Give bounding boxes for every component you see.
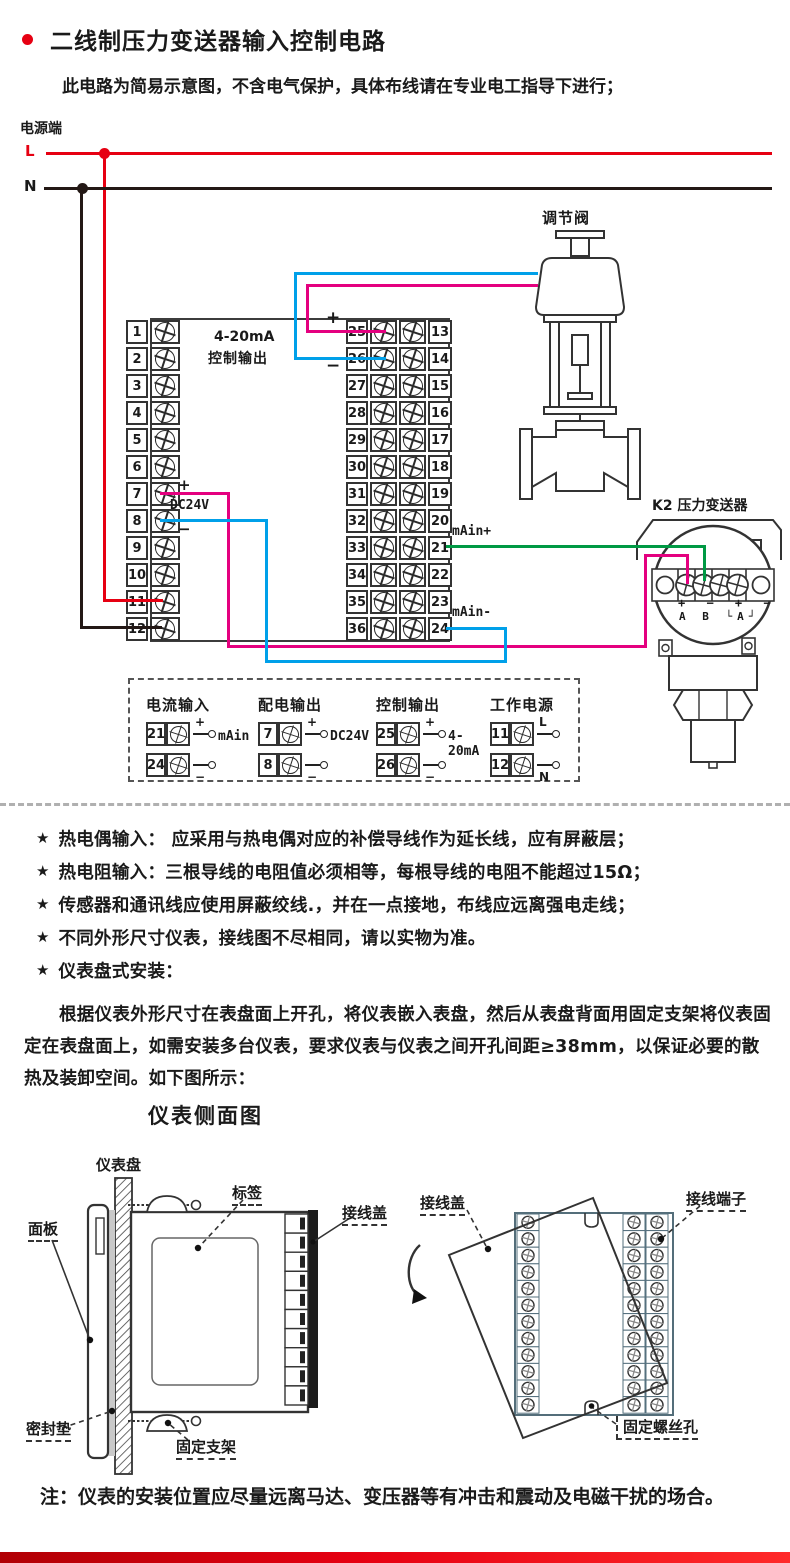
wire-stub: [537, 764, 552, 766]
wire-stub: [423, 733, 438, 735]
screw-icon: [400, 427, 425, 452]
star-icon: ★: [36, 862, 49, 880]
terminal-row: 32 20: [346, 509, 452, 533]
terminal-number: 3: [126, 374, 148, 398]
document-page: 二线制压力变送器输入控制电路 此电路为简易示意图，不含电气保护，具体布线请在专业…: [0, 0, 790, 1563]
terminal-number: 5: [126, 428, 148, 452]
rear-view-group: [409, 1198, 700, 1438]
terminal-screw-cell: [370, 536, 397, 560]
terminal-screw-cell: [399, 536, 426, 560]
page-subtitle: 此电路为简易示意图，不含电气保护，具体布线请在专业电工指导下进行；: [62, 72, 623, 97]
screw-icon: [152, 589, 177, 614]
terminal-row: 1: [126, 320, 180, 344]
terminal-number: 11: [126, 590, 148, 614]
screw-icon: [400, 589, 425, 614]
terminal-cover-label: 接线盖: [342, 1202, 387, 1226]
wire-segment-main-minus: [265, 660, 507, 663]
terminal-number-inner: 33: [346, 536, 368, 560]
legend-group-control-output: 控制输出 25+ 26− 4-20mA: [376, 694, 446, 784]
terminal-circle-icon: [208, 761, 216, 769]
terminal-screw-cell: [399, 455, 426, 479]
terminal-number-inner: 28: [346, 401, 368, 425]
page-title: 二线制压力变送器输入控制电路: [50, 22, 386, 56]
wire-segment-live: [46, 152, 772, 155]
screw-icon: [152, 400, 177, 425]
main-minus-label: mAin-: [452, 605, 491, 620]
screw-icon: [371, 508, 396, 533]
terminal-number: 9: [126, 536, 148, 560]
screw-icon: [152, 562, 177, 587]
wire-segment-main-minus: [446, 627, 507, 630]
note-text: 热电偶输入： 应采用与热电偶对应的补偿导线作为延长线，应有屏蔽层；: [58, 826, 634, 851]
terminal-cover2-label: 接线盖: [420, 1192, 465, 1216]
terminal-number-inner: 36: [346, 617, 368, 641]
valve-label: 调节阀: [542, 207, 590, 228]
terminal-row: 5: [126, 428, 180, 452]
terminal-number-inner: 27: [346, 374, 368, 398]
terminal-number: 7: [258, 722, 278, 746]
polarity-tag: +: [195, 715, 205, 729]
legend-group-power-output: 配电输出 7+ 8− DC24V: [258, 694, 328, 784]
screw-icon: [397, 723, 418, 744]
wire-stub: [537, 733, 552, 735]
note-item: ★ 传感器和通讯线应使用屏蔽绞线.，并在一点接地，布线应远离强电走线；: [36, 892, 772, 925]
terminal-screw-cell: [399, 374, 426, 398]
neutral-line-label: N: [24, 177, 37, 195]
terminal-number: 8: [126, 509, 148, 533]
terminal-number-inner: 29: [346, 428, 368, 452]
terminal-row: 27 15: [346, 374, 452, 398]
terminal-number-inner: 30: [346, 455, 368, 479]
terminal26-minus-sign: −: [326, 356, 340, 376]
screw-icon: [400, 454, 425, 479]
main-plus-label: mAin+: [452, 524, 491, 539]
terminal-screw-cell: [370, 401, 397, 425]
terminal-number: 6: [126, 455, 148, 479]
wiring-terminals-label: 接线端子: [686, 1188, 746, 1212]
polarity-tag: −: [195, 770, 205, 784]
note-text: 热电阻输入：三根导线的电阻值必须相等，每根导线的电阻不能超过15Ω；: [58, 859, 650, 884]
screw-icon: [371, 589, 396, 614]
terminal-screw-cell: [150, 347, 180, 371]
control-output-label-line2: 控制输出: [208, 348, 268, 368]
polarity-tag: +: [425, 715, 435, 729]
terminal-screw-cell: [510, 722, 534, 746]
wire-stub: [305, 764, 320, 766]
terminal-number: 7: [126, 482, 148, 506]
screw-icon: [152, 427, 177, 452]
screw-icon: [400, 481, 425, 506]
note-item: ★ 仪表盘式安装：: [36, 958, 772, 991]
notes-list: ★ 热电偶输入： 应采用与热电偶对应的补偿导线作为延长线，应有屏蔽层； ★ 热电…: [36, 826, 772, 991]
transmitter-polarity-signs: + − + −: [678, 596, 778, 610]
wire-segment-neutral: [80, 187, 83, 629]
terminal-number-inner: 32: [346, 509, 368, 533]
polarity-tag: L: [539, 715, 547, 729]
terminal-circle-icon: [208, 730, 216, 738]
terminal-screw-cell: [150, 428, 180, 452]
terminal-number-outer: 15: [428, 374, 452, 398]
terminal-circle-icon: [438, 730, 446, 738]
terminal-circle-icon: [552, 730, 560, 738]
terminal-screw-cell: [396, 753, 420, 777]
terminal-row: 35 23: [346, 590, 452, 614]
legend-group-title: 配电输出: [258, 694, 328, 715]
terminal-number-outer: 17: [428, 428, 452, 452]
wire-segment-control-minus: [294, 272, 538, 275]
wire-segment-live: [103, 599, 163, 602]
screw-icon: [371, 373, 396, 398]
note-item: ★ 热电阻输入：三根导线的电阻值必须相等，每根导线的电阻不能超过15Ω；: [36, 859, 772, 892]
terminal-number: 21: [146, 722, 166, 746]
terminal-circle-icon: [438, 761, 446, 769]
screw-icon: [371, 481, 396, 506]
transmitter-terminal-letters: A B └A┘: [679, 610, 760, 623]
terminal-number-outer: 21: [428, 536, 452, 560]
terminal-number-outer: 20: [428, 509, 452, 533]
polarity-tag: −: [307, 770, 317, 784]
fixing-screw-hole-label: 固定螺丝孔: [616, 1416, 698, 1440]
screw-icon: [152, 346, 177, 371]
terminal-screw-cell: [399, 428, 426, 452]
screw-icon: [400, 346, 425, 371]
screw-icon: [400, 373, 425, 398]
wire-segment-supply-plus: [644, 554, 689, 557]
screw-icon: [397, 754, 418, 775]
wire-segment-supply-plus: [160, 492, 230, 495]
wire-segment-main-minus: [504, 627, 507, 663]
footer-accent-bar: [0, 1552, 790, 1563]
terminal-number: 24: [146, 753, 166, 777]
terminal-screw-cell: [370, 563, 397, 587]
screw-icon: [400, 508, 425, 533]
wire-segment-control-minus: [294, 272, 297, 358]
terminal-screw-cell: [278, 753, 302, 777]
terminal-screw-cell: [399, 590, 426, 614]
legend-group-title: 工作电源: [490, 694, 560, 715]
title-bullet-icon: [22, 34, 33, 45]
terminal-row: 9: [126, 536, 180, 560]
terminal-screw-cell: [370, 590, 397, 614]
terminal-screw-cell: [370, 428, 397, 452]
wire-stub: [305, 733, 320, 735]
wire-segment-supply-plus: [686, 554, 689, 584]
terminal-number-inner: 35: [346, 590, 368, 614]
screw-icon: [152, 373, 177, 398]
polarity-tag: −: [425, 770, 435, 784]
dc24v-minus-sign: −: [178, 520, 191, 538]
wire-stub: [193, 733, 208, 735]
live-line-label: L: [25, 142, 35, 160]
front-panel-label: 面板: [28, 1218, 58, 1242]
install-paragraph: 根据仪表外形尺寸在表盘面上开孔，将仪表嵌入表盘，然后从表盘背面用固定支架将仪表固…: [24, 1000, 772, 1096]
terminal-number: 1: [126, 320, 148, 344]
terminal-circle-icon: [320, 761, 328, 769]
terminal-screw-cell: [370, 482, 397, 506]
screw-icon: [371, 616, 396, 641]
terminal-row: 36 24: [346, 617, 452, 641]
terminal-number: 26: [376, 753, 396, 777]
screw-icon: [279, 723, 300, 744]
left-terminal-column: 1 2 3 4 5 6: [126, 320, 180, 644]
screw-icon: [371, 400, 396, 425]
terminal-row: 33 21: [346, 536, 452, 560]
terminal-number-inner: 31: [346, 482, 368, 506]
terminal25-plus-sign: +: [326, 308, 340, 328]
terminal-screw-cell: [396, 722, 420, 746]
section-separator: [0, 803, 790, 806]
terminal-number: 25: [376, 722, 396, 746]
terminal-legend-box: 电流输入 21+ 24− mAin 配电输出 7+ 8− DC24V 控制输出 …: [128, 678, 580, 782]
legend-group-working-power: 工作电源 11L 12N: [490, 694, 560, 784]
screw-icon: [371, 562, 396, 587]
terminal-screw-cell: [370, 509, 397, 533]
terminal-number: 10: [126, 563, 148, 587]
wire-segment-supply-plus: [227, 492, 230, 648]
terminal-screw-cell: [150, 401, 180, 425]
right-terminal-column: 25 13 26 14 27 15 28: [346, 320, 452, 644]
terminal-number: 8: [258, 753, 278, 777]
control-output-label-line1: 4-20mA: [214, 329, 274, 345]
screw-icon: [152, 319, 177, 344]
sideview-heading: 仪表侧面图: [148, 1100, 263, 1130]
terminal-screw-cell: [150, 590, 180, 614]
transmitter-label: K2 压力变送器: [652, 495, 747, 515]
legend-signal-label: DC24V: [330, 729, 369, 744]
terminal-screw-cell: [510, 753, 534, 777]
screw-icon: [152, 535, 177, 560]
wire-segment-main-plus: [703, 545, 706, 581]
polarity-tag: +: [307, 715, 317, 729]
star-icon: ★: [36, 895, 49, 913]
terminal-screw-cell: [166, 753, 190, 777]
seal-gasket-label: 密封垫: [26, 1418, 71, 1442]
terminal-screw-cell: [370, 374, 397, 398]
terminal-screw-cell: [399, 509, 426, 533]
terminal-screw-cell: [278, 722, 302, 746]
wire-stub: [423, 764, 438, 766]
note-item: ★ 热电偶输入： 应采用与热电偶对应的补偿导线作为延长线，应有屏蔽层；: [36, 826, 772, 859]
note-item: ★ 不同外形尺寸仪表，接线图不尽相同，请以实物为准。: [36, 925, 772, 958]
terminal-number: 4: [126, 401, 148, 425]
terminal-row: 11: [126, 590, 180, 614]
wire-segment-control-plus: [306, 284, 309, 332]
terminal-row: 4: [126, 401, 180, 425]
screw-icon: [167, 723, 188, 744]
screw-icon: [511, 754, 532, 775]
screw-icon: [371, 427, 396, 452]
note-text: 仪表盘式安装：: [58, 958, 183, 983]
screw-icon: [167, 754, 188, 775]
wire-stub: [193, 764, 208, 766]
terminal-screw-cell: [150, 374, 180, 398]
fixing-bracket-label: 固定支架: [176, 1436, 236, 1460]
screw-icon: [152, 616, 177, 641]
screw-icon: [371, 535, 396, 560]
terminal-number-outer: 14: [428, 347, 452, 371]
legend-group-title: 控制输出: [376, 694, 446, 715]
wire-segment-main-minus: [265, 519, 268, 663]
screw-icon: [400, 616, 425, 641]
install-note: 注：仪表的安装位置应尽量远离马达、变压器等有冲击和震动及电磁干扰的场合。: [40, 1482, 724, 1509]
power-terminal-label: 电源端: [20, 118, 62, 138]
wire-segment-main-plus: [446, 545, 706, 548]
terminal-screw-cell: [150, 455, 180, 479]
wire-segment-neutral: [80, 626, 162, 629]
terminal-screw-cell: [399, 563, 426, 587]
screw-icon: [279, 754, 300, 775]
tag-label: 标签: [232, 1182, 262, 1206]
terminal-row: 12: [126, 617, 180, 641]
terminal-screw-cell: [399, 617, 426, 641]
terminal-row: 34 22: [346, 563, 452, 587]
terminal-screw-cell: [399, 401, 426, 425]
legend-group-title: 电流输入: [146, 694, 216, 715]
terminal-screw-cell: [399, 320, 426, 344]
terminal-row: 29 17: [346, 428, 452, 452]
wire-segment-main-minus: [160, 519, 268, 522]
wire-segment-control-plus: [306, 330, 386, 333]
star-icon: ★: [36, 961, 49, 979]
control-valve-drawing: [500, 225, 660, 505]
terminal-circle-icon: [320, 730, 328, 738]
star-icon: ★: [36, 928, 49, 946]
screw-icon: [400, 400, 425, 425]
screw-icon: [400, 319, 425, 344]
terminal-row: 2: [126, 347, 180, 371]
terminal-number: 12: [490, 753, 510, 777]
side-view-group: [52, 1178, 350, 1474]
terminal-number: 12: [126, 617, 148, 641]
terminal-screw-cell: [399, 482, 426, 506]
screw-icon: [371, 454, 396, 479]
terminal-row: 3: [126, 374, 180, 398]
terminal-number-outer: 16: [428, 401, 452, 425]
terminal-screw-cell: [399, 347, 426, 371]
terminal-screw-cell: [150, 536, 180, 560]
wire-segment-supply-plus: [227, 645, 647, 648]
terminal-number-outer: 22: [428, 563, 452, 587]
polarity-tag: N: [539, 770, 549, 784]
dc24v-label: DC24V: [170, 498, 209, 513]
wire-segment-live: [103, 152, 106, 600]
terminal-screw-cell: [150, 563, 180, 587]
wire-segment-neutral: [44, 187, 772, 190]
dc24v-plus-sign: +: [178, 476, 191, 494]
legend-signal-label: mAin: [218, 729, 249, 744]
terminal-circle-icon: [552, 761, 560, 769]
terminal-number-inner: 34: [346, 563, 368, 587]
note-text: 不同外形尺寸仪表，接线图不尽相同，请以实物为准。: [58, 925, 485, 950]
note-text: 传感器和通讯线应使用屏蔽绞线.，并在一点接地，布线应远离强电走线；: [58, 892, 635, 917]
wire-segment-supply-plus: [644, 554, 647, 648]
legend-signal-label: 4-20mA: [448, 729, 479, 759]
wire-segment-control-plus: [306, 284, 538, 287]
screw-icon: [511, 723, 532, 744]
terminal-row: 6: [126, 455, 180, 479]
screw-icon: [400, 562, 425, 587]
terminal-number-outer: 18: [428, 455, 452, 479]
terminal-number-outer: 19: [428, 482, 452, 506]
terminal-number-outer: 23: [428, 590, 452, 614]
terminal-row: 28 16: [346, 401, 452, 425]
terminal-row: 30 18: [346, 455, 452, 479]
legend-group-current-input: 电流输入 21+ 24− mAin: [146, 694, 216, 784]
pressure-transmitter-drawing: [625, 508, 790, 778]
terminal-number: 11: [490, 722, 510, 746]
terminal-screw-cell: [150, 320, 180, 344]
terminal-screw-cell: [370, 617, 397, 641]
panel-board-label: 仪表盘: [96, 1154, 141, 1175]
screw-icon: [152, 454, 177, 479]
terminal-screw-cell: [166, 722, 190, 746]
terminal-screw-cell: [150, 617, 180, 641]
star-icon: ★: [36, 829, 49, 847]
terminal-number: 2: [126, 347, 148, 371]
terminal-row: 31 19: [346, 482, 452, 506]
screw-icon: [400, 535, 425, 560]
terminal-row: 10: [126, 563, 180, 587]
terminal-number-outer: 13: [428, 320, 452, 344]
terminal-screw-cell: [370, 455, 397, 479]
